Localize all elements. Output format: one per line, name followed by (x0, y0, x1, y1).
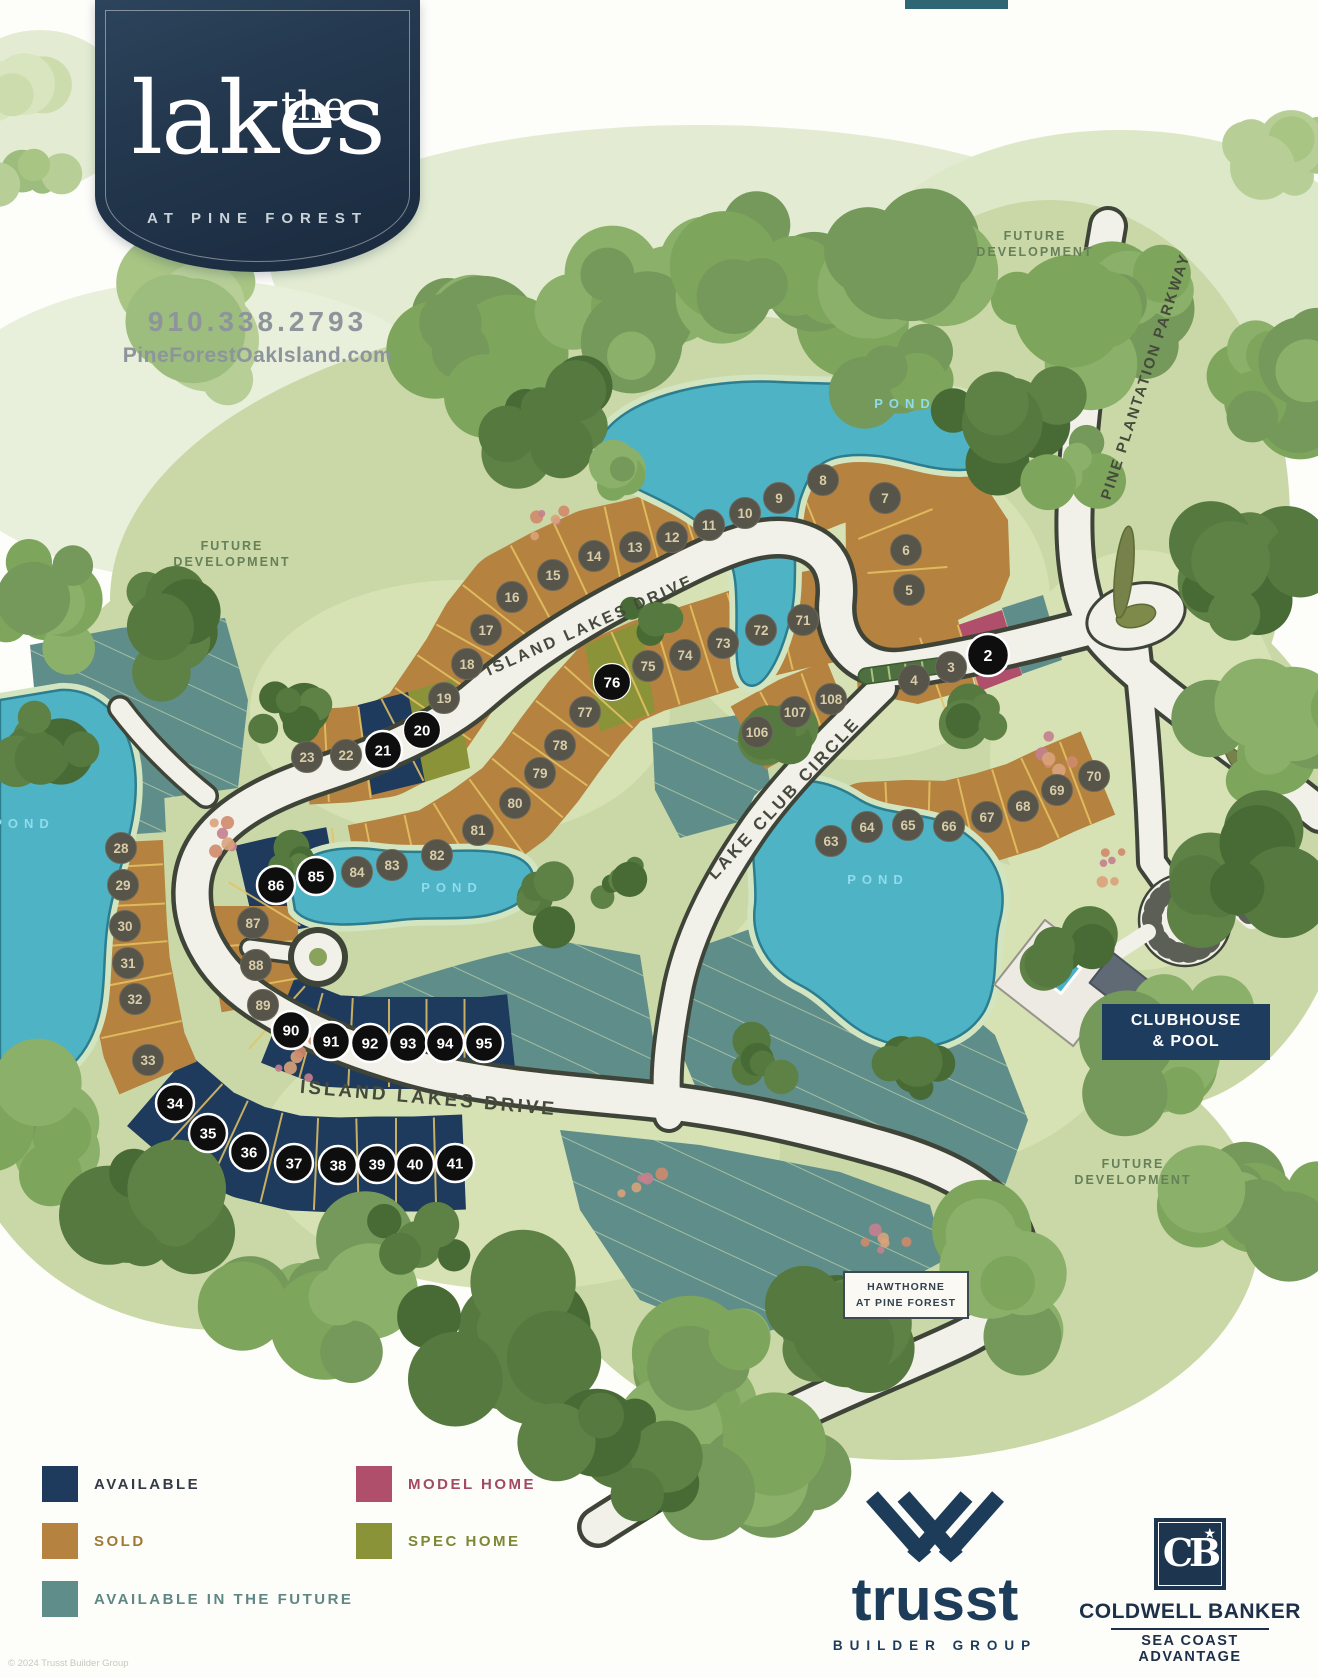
svg-text:17: 17 (478, 623, 493, 638)
lot-marker-29[interactable]: 29 (108, 870, 139, 901)
divider (1111, 1628, 1269, 1630)
lot-marker-64[interactable]: 64 (852, 812, 883, 843)
clubhouse-sign: CLUBHOUSE & POOL (1102, 1004, 1270, 1060)
svg-text:21: 21 (375, 742, 392, 759)
lot-marker-22[interactable]: 22 (331, 740, 362, 771)
coldwell-banker-sub2: ADVANTAGE (1060, 1649, 1318, 1665)
legend-item-available: AVAILABLE (42, 1466, 200, 1502)
lot-marker-30[interactable]: 30 (110, 911, 141, 942)
pond-label: POND (874, 396, 936, 411)
svg-text:81: 81 (470, 823, 486, 838)
svg-text:19: 19 (436, 691, 451, 706)
legend-label: AVAILABLE (94, 1476, 200, 1493)
svg-text:76: 76 (604, 674, 621, 691)
lot-marker-108[interactable]: 108 (816, 684, 847, 715)
lot-marker-5[interactable]: 5 (894, 575, 925, 606)
legend-item-model: MODEL HOME (356, 1466, 536, 1502)
svg-text:72: 72 (753, 623, 768, 638)
svg-text:8: 8 (819, 473, 827, 488)
trusst-mark-icon (850, 1488, 1020, 1568)
svg-text:28: 28 (113, 841, 129, 856)
lot-marker-69[interactable]: 69 (1042, 775, 1073, 806)
legend-label: AVAILABLE IN THE FUTURE (94, 1591, 353, 1608)
brand-badge: the lakes AT PINE FOREST (95, 0, 420, 272)
svg-text:106: 106 (746, 725, 769, 740)
legend-item-future: AVAILABLE IN THE FUTURE (42, 1581, 353, 1617)
svg-text:80: 80 (507, 796, 522, 811)
lot-marker-18[interactable]: 18 (452, 649, 483, 680)
lot-marker-40[interactable]: 40 (396, 1145, 434, 1183)
svg-text:4: 4 (910, 673, 918, 688)
svg-text:9: 9 (775, 491, 783, 506)
svg-text:63: 63 (823, 834, 839, 849)
lot-marker-32[interactable]: 32 (120, 984, 151, 1015)
lot-marker-78[interactable]: 78 (545, 730, 576, 761)
brand-word: lakes (95, 60, 420, 177)
svg-text:88: 88 (248, 958, 264, 973)
lot-marker-63[interactable]: 63 (816, 826, 847, 857)
lot-marker-68[interactable]: 68 (1008, 791, 1039, 822)
legend-swatch (42, 1523, 78, 1559)
svg-text:6: 6 (902, 543, 910, 558)
lot-marker-17[interactable]: 17 (471, 615, 502, 646)
svg-text:12: 12 (664, 530, 679, 545)
lot-marker-19[interactable]: 19 (429, 683, 460, 714)
pond-label: POND (0, 816, 55, 831)
svg-text:38: 38 (330, 1157, 347, 1174)
svg-text:78: 78 (552, 738, 568, 753)
lot-marker-12[interactable]: 12 (657, 522, 688, 553)
svg-text:79: 79 (532, 766, 547, 781)
lot-marker-82[interactable]: 82 (422, 840, 453, 871)
contact-block: 910.338.2793 PineForestOakIsland.com (95, 306, 420, 368)
svg-text:36: 36 (241, 1144, 258, 1161)
lot-marker-41[interactable]: 41 (436, 1144, 474, 1182)
svg-text:70: 70 (1086, 769, 1101, 784)
lot-marker-91[interactable]: 91 (312, 1022, 350, 1060)
lot-marker-72[interactable]: 72 (746, 615, 777, 646)
lot-marker-94[interactable]: 94 (426, 1024, 464, 1062)
site-plan-page: ISLAND LAKES DRIVEISLAND LAKES DRIVELAKE… (0, 0, 1318, 1678)
svg-text:22: 22 (338, 748, 353, 763)
svg-text:35: 35 (200, 1125, 217, 1142)
svg-text:82: 82 (429, 848, 444, 863)
svg-text:5: 5 (905, 583, 913, 598)
lot-marker-21[interactable]: 21 (364, 731, 402, 769)
lot-marker-35[interactable]: 35 (189, 1114, 227, 1152)
lot-marker-67[interactable]: 67 (972, 802, 1003, 833)
lot-marker-2[interactable]: 2 (967, 634, 1009, 676)
lot-marker-84[interactable]: 84 (342, 857, 373, 888)
legend-swatch (42, 1466, 78, 1502)
svg-text:31: 31 (120, 956, 136, 971)
svg-text:94: 94 (437, 1035, 454, 1052)
lot-marker-11[interactable]: 11 (694, 510, 725, 541)
svg-text:91: 91 (323, 1033, 340, 1050)
lot-marker-85[interactable]: 85 (297, 857, 335, 895)
svg-text:95: 95 (476, 1035, 493, 1052)
lot-marker-23[interactable]: 23 (292, 742, 323, 773)
svg-text:40: 40 (407, 1156, 424, 1173)
legend-item-sold: SOLD (42, 1523, 146, 1559)
lot-marker-33[interactable]: 33 (133, 1045, 164, 1076)
svg-text:20: 20 (414, 722, 431, 739)
lot-marker-106[interactable]: 106 (742, 717, 773, 748)
lot-marker-36[interactable]: 36 (230, 1133, 268, 1171)
svg-text:86: 86 (268, 877, 285, 894)
svg-text:29: 29 (115, 878, 130, 893)
legend-swatch (42, 1581, 78, 1617)
trusst-wordmark: trusst (820, 1570, 1050, 1630)
svg-text:10: 10 (737, 506, 752, 521)
svg-text:87: 87 (245, 916, 260, 931)
lot-marker-15[interactable]: 15 (538, 560, 569, 591)
lot-marker-38[interactable]: 38 (319, 1146, 357, 1184)
svg-text:74: 74 (677, 648, 693, 663)
svg-text:107: 107 (784, 705, 807, 720)
lot-marker-74[interactable]: 74 (670, 640, 701, 671)
svg-text:41: 41 (447, 1155, 464, 1172)
svg-text:71: 71 (795, 613, 811, 628)
svg-text:37: 37 (286, 1155, 303, 1172)
svg-text:34: 34 (167, 1095, 184, 1112)
lot-marker-71[interactable]: 71 (788, 605, 819, 636)
svg-text:16: 16 (504, 590, 520, 605)
legend-item-spec: SPEC HOME (356, 1523, 521, 1559)
lot-marker-7[interactable]: 7 (870, 483, 901, 514)
svg-text:75: 75 (640, 659, 656, 674)
lot-marker-34[interactable]: 34 (156, 1084, 194, 1122)
svg-text:92: 92 (362, 1035, 379, 1052)
svg-text:7: 7 (881, 491, 889, 506)
svg-text:3: 3 (947, 660, 955, 675)
svg-text:69: 69 (1049, 783, 1064, 798)
svg-text:73: 73 (715, 636, 731, 651)
lot-marker-93[interactable]: 93 (389, 1024, 427, 1062)
lot-marker-73[interactable]: 73 (708, 628, 739, 659)
lot-marker-107[interactable]: 107 (780, 697, 811, 728)
svg-text:39: 39 (369, 1156, 386, 1173)
svg-text:89: 89 (255, 998, 270, 1013)
top-edge-bar (905, 0, 1008, 9)
svg-text:66: 66 (941, 819, 957, 834)
lot-marker-88[interactable]: 88 (241, 950, 272, 981)
lot-marker-9[interactable]: 9 (764, 483, 795, 514)
svg-text:33: 33 (140, 1053, 156, 1068)
legend-swatch (356, 1466, 392, 1502)
svg-text:11: 11 (702, 518, 717, 533)
lot-marker-81[interactable]: 81 (463, 815, 494, 846)
lot-marker-75[interactable]: 75 (633, 651, 664, 682)
website-link[interactable]: PineForestOakIsland.com (95, 344, 420, 368)
svg-text:83: 83 (384, 858, 400, 873)
lot-marker-6[interactable]: 6 (891, 535, 922, 566)
svg-text:15: 15 (545, 568, 561, 583)
lot-marker-39[interactable]: 39 (358, 1145, 396, 1183)
coldwell-banker-sub1: SEA COAST (1060, 1633, 1318, 1649)
pond-label: POND (421, 880, 483, 895)
legend-label: MODEL HOME (408, 1476, 536, 1493)
svg-text:93: 93 (400, 1035, 417, 1052)
svg-text:13: 13 (627, 540, 643, 555)
lot-marker-80[interactable]: 80 (500, 788, 531, 819)
lot-marker-3[interactable]: 3 (936, 652, 967, 683)
lot-marker-66[interactable]: 66 (934, 811, 965, 842)
lot-marker-83[interactable]: 83 (377, 850, 408, 881)
hawthorne-sign: HAWTHORNE AT PINE FOREST (843, 1271, 969, 1319)
svg-text:68: 68 (1015, 799, 1031, 814)
lot-marker-28[interactable]: 28 (106, 833, 137, 864)
coldwell-banker-logo: CB ★ COLDWELL BANKER SEA COAST ADVANTAGE (1060, 1518, 1318, 1665)
legend-label: SPEC HOME (408, 1533, 521, 1550)
svg-text:85: 85 (308, 868, 325, 885)
lot-marker-89[interactable]: 89 (248, 990, 279, 1021)
lot-marker-8[interactable]: 8 (808, 465, 839, 496)
lot-marker-31[interactable]: 31 (113, 948, 144, 979)
legend-swatch (356, 1523, 392, 1559)
lot-marker-76[interactable]: 76 (594, 664, 631, 701)
svg-text:108: 108 (820, 692, 843, 707)
lot-marker-87[interactable]: 87 (238, 908, 269, 939)
lot-marker-20[interactable]: 20 (404, 712, 441, 749)
legend-label: SOLD (94, 1533, 146, 1550)
coldwell-banker-mark-icon: CB ★ (1154, 1518, 1226, 1590)
copyright-text: © 2024 Trusst Builder Group (8, 1658, 129, 1669)
lot-marker-13[interactable]: 13 (620, 532, 651, 563)
trusst-logo: trusst BUILDER GROUP (820, 1488, 1050, 1653)
lot-marker-90[interactable]: 90 (272, 1011, 310, 1049)
pond-label: POND (847, 872, 909, 887)
lot-marker-4[interactable]: 4 (899, 665, 930, 696)
lot-marker-77[interactable]: 77 (570, 697, 601, 728)
svg-text:2: 2 (984, 648, 993, 665)
svg-text:64: 64 (859, 820, 875, 835)
svg-text:30: 30 (117, 919, 132, 934)
svg-text:14: 14 (586, 549, 602, 564)
lot-marker-16[interactable]: 16 (497, 582, 528, 613)
svg-text:77: 77 (577, 705, 592, 720)
lot-marker-92[interactable]: 92 (351, 1024, 389, 1062)
phone-number[interactable]: 910.338.2793 (95, 306, 420, 338)
lot-marker-37[interactable]: 37 (275, 1144, 313, 1182)
coldwell-banker-name: COLDWELL BANKER (1060, 1600, 1318, 1624)
lot-marker-79[interactable]: 79 (525, 758, 556, 789)
svg-text:18: 18 (459, 657, 475, 672)
svg-text:84: 84 (349, 865, 365, 880)
lot-marker-86[interactable]: 86 (257, 866, 295, 904)
svg-text:67: 67 (979, 810, 994, 825)
lot-marker-14[interactable]: 14 (579, 541, 610, 572)
brand-subtitle: AT PINE FOREST (95, 210, 420, 227)
lot-marker-10[interactable]: 10 (730, 498, 761, 529)
lot-marker-65[interactable]: 65 (893, 810, 924, 841)
lot-marker-95[interactable]: 95 (465, 1024, 503, 1062)
svg-text:32: 32 (127, 992, 142, 1007)
svg-text:65: 65 (900, 818, 916, 833)
svg-text:23: 23 (299, 750, 315, 765)
trusst-subtitle: BUILDER GROUP (820, 1638, 1050, 1653)
lot-marker-70[interactable]: 70 (1079, 761, 1110, 792)
svg-text:90: 90 (283, 1022, 300, 1039)
